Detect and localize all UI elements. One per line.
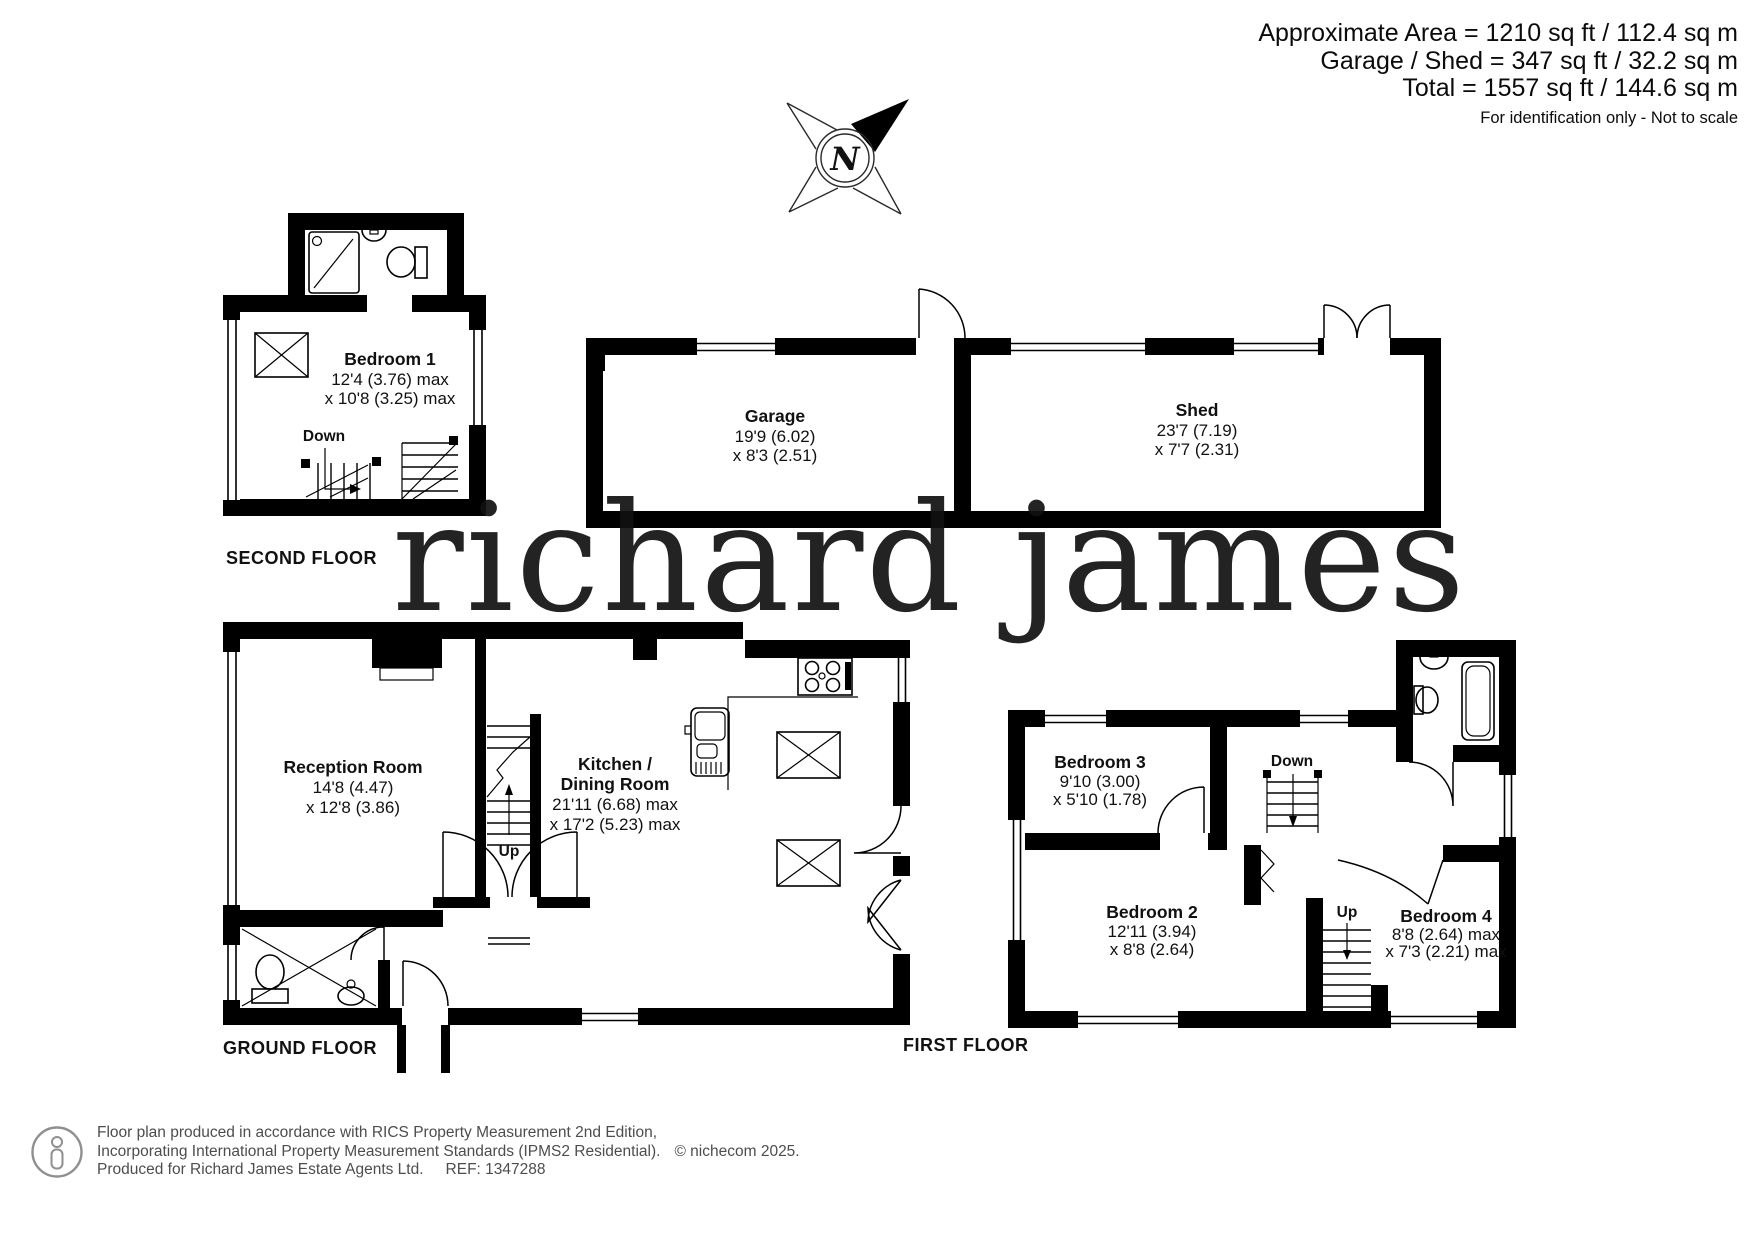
kitchen-name2: Dining Room [561,774,670,794]
first-floor-label: FIRST FLOOR [903,1035,1029,1055]
bedroom1-name: Bedroom 1 [344,349,436,369]
second-floor-label: SECOND FLOOR [226,548,377,568]
footer: Floor plan produced in accordance with R… [30,1124,800,1180]
reception-dim1: 14'8 (4.47) [313,778,394,797]
first-floor-down-label: Down [1271,753,1313,770]
shed-name: Shed [1176,400,1219,420]
total-area-line: Total = 1557 sq ft / 144.6 sq m [1258,75,1738,103]
bedroom2-name: Bedroom 2 [1106,902,1198,922]
nichecom-logo-icon [30,1125,84,1179]
garage-dim2: x 8'3 (2.51) [733,446,818,465]
garage-shed-area-line: Garage / Shed = 347 sq ft / 32.2 sq m [1258,48,1738,76]
floorplan-canvas: Down Bedroom 1 12'4 (3.76) max x 10'8 (3… [0,0,1755,1241]
ground-floor-plan: Up Reception Room 14'8 (4.47) x 12'8 (3.… [223,622,910,1073]
garage-dim1: 19'9 (6.02) [735,427,816,446]
second-floor-stair-label: Down [303,428,345,445]
footer-line3: Produced for Richard James Estate Agents… [97,1161,424,1178]
footer-line2: Incorporating International Property Mea… [97,1143,660,1160]
compass-icon: N [787,99,909,214]
footer-ref: REF: 1347288 [446,1161,546,1178]
bedroom1-dim1: 12'4 (3.76) max [331,370,449,389]
shed-dim1: 23'7 (7.19) [1157,421,1238,440]
compass-north-label: N [829,140,861,178]
kitchen-dim1: 21'11 (6.68) max [552,795,678,814]
shed-dim2: x 7'7 (2.31) [1155,440,1240,459]
bedroom3-name: Bedroom 3 [1054,752,1146,772]
floorplan-page: Down Bedroom 1 12'4 (3.76) max x 10'8 (3… [0,0,1755,1241]
reception-dim2: x 12'8 (3.86) [306,798,400,817]
bedroom4-dim2: x 7'3 (2.21) max [1385,942,1507,961]
footer-text: Floor plan produced in accordance with R… [97,1124,800,1180]
watermark-text: richard james [392,472,1467,646]
approximate-area-line: Approximate Area = 1210 sq ft / 112.4 sq… [1258,20,1738,48]
garage-name: Garage [745,406,806,426]
bedroom2-dim1: 12'11 (3.94) [1108,922,1197,941]
bedroom4-name: Bedroom 4 [1400,906,1492,926]
first-floor-up-label: Up [1337,904,1358,921]
area-summary: Approximate Area = 1210 sq ft / 112.4 sq… [1258,20,1738,128]
footer-copyright: © nichecom 2025. [674,1143,799,1160]
kitchen-dim2: x 17'2 (5.23) max [550,815,681,834]
footer-line1: Floor plan produced in accordance with R… [97,1124,800,1143]
ground-floor-label: GROUND FLOOR [223,1038,377,1058]
shed-double-doors [1324,305,1390,355]
disclaimer-line: For identification only - Not to scale [1258,109,1738,128]
reception-name: Reception Room [283,757,422,777]
first-floor-plan: Down Up Bedroom 3 9'10 (3.00) x 5'10 (1.… [903,640,1516,1055]
bedroom3-dim1: 9'10 (3.00) [1060,772,1141,791]
bedroom2-dim2: x 8'8 (2.64) [1110,940,1195,959]
kitchen-name: Kitchen / [578,754,652,774]
bedroom3-dim2: x 5'10 (1.78) [1053,790,1147,809]
bedroom1-dim2: x 10'8 (3.25) max [325,389,456,408]
ground-floor-stair-label: Up [499,843,520,860]
